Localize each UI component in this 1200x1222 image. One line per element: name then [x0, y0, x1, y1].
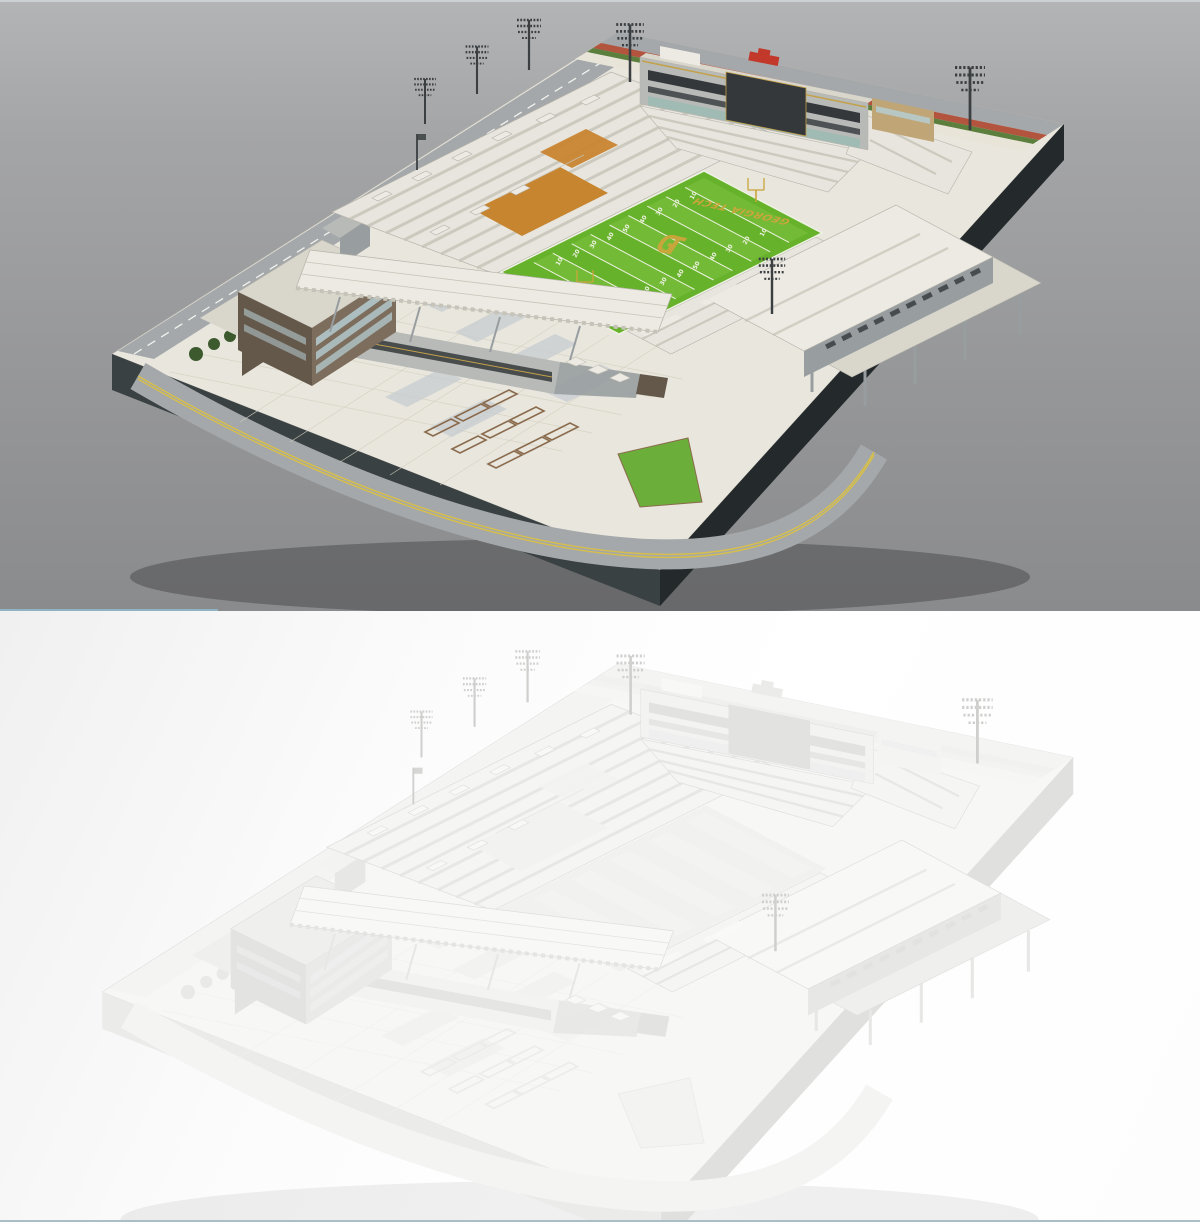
- textured-render-svg: [0, 2, 1200, 611]
- stadium-model-instance-textured: [112, 20, 1064, 611]
- clay-render-svg: [0, 611, 1200, 1222]
- stadium-model-instance-clay: [102, 651, 1073, 1222]
- clay-render-panel: [0, 611, 1200, 1222]
- textured-render-panel: [0, 0, 1200, 611]
- render-comparison-stage: 10 20 30 40 50 40 30 20 10 10 20 30 40 5…: [0, 0, 1200, 1222]
